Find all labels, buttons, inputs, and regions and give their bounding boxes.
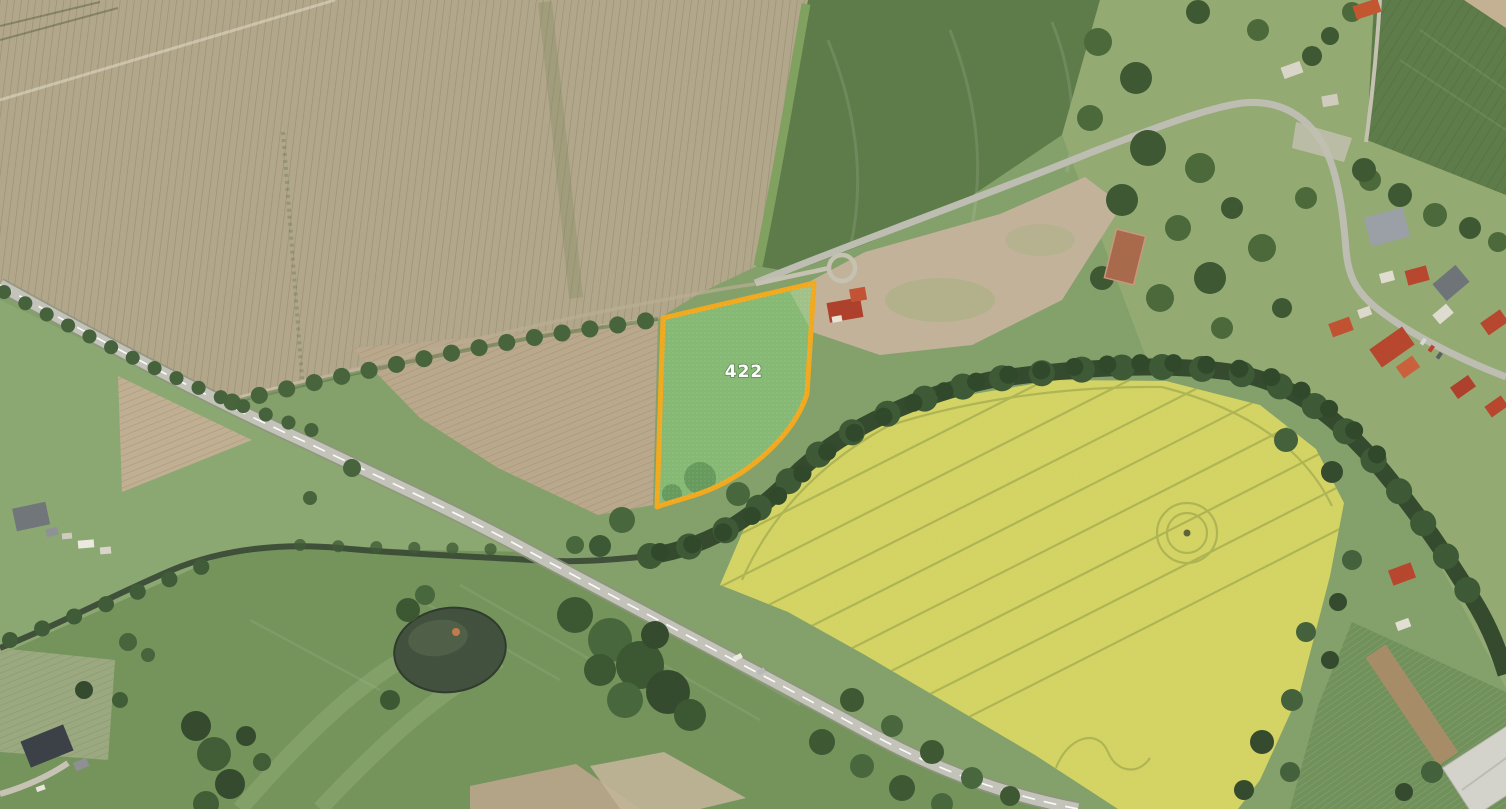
map-viewport[interactable]: 422 <box>0 0 1506 809</box>
parcel-label: 422 <box>725 362 764 382</box>
map-canvas[interactable]: 422 <box>0 0 1506 809</box>
photo-grain <box>0 0 1506 809</box>
